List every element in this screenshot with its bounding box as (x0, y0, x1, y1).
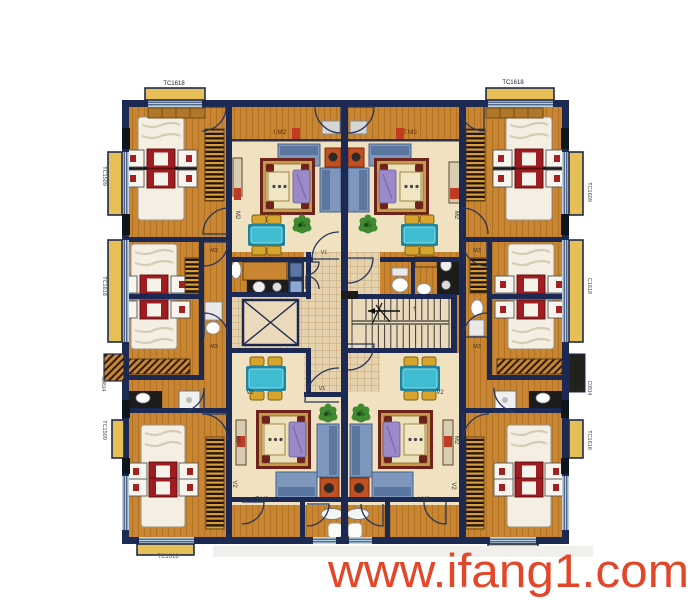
svg-text:www.ifang1.com: www.ifang1.com (327, 544, 689, 597)
svg-text:TC1618: TC1618 (157, 554, 179, 560)
svg-text:C1618: C1618 (586, 278, 592, 294)
svg-text:V2: V2 (450, 482, 456, 490)
svg-text:V1: V1 (319, 386, 326, 392)
svg-text:TC1618: TC1618 (502, 80, 524, 86)
svg-text:M2: M2 (234, 211, 240, 220)
svg-text:TC1509: TC1509 (101, 166, 107, 186)
svg-text:I.M2: I.M2 (274, 129, 287, 136)
svg-text:M2: M2 (453, 436, 459, 445)
svg-text:M3: M3 (210, 248, 218, 254)
svg-text:C0814: C0814 (586, 381, 592, 396)
svg-text:M3: M3 (473, 248, 481, 254)
svg-text:TC1618: TC1618 (101, 276, 107, 296)
svg-text:TC1509: TC1509 (101, 420, 107, 440)
svg-text:TC1609: TC1609 (586, 182, 592, 202)
svg-text:M2: M2 (453, 211, 459, 220)
svg-text:V1: V1 (321, 250, 328, 256)
svg-text:V2: V2 (436, 390, 444, 396)
svg-text:LM3: LM3 (418, 497, 430, 503)
svg-text:M3: M3 (473, 344, 481, 350)
svg-text:TC1618: TC1618 (586, 430, 592, 450)
svg-text:V2: V2 (231, 480, 237, 488)
svg-text:T.M2: T.M2 (403, 129, 417, 136)
svg-text:↑: ↑ (412, 304, 416, 313)
svg-text:M3: M3 (210, 344, 218, 350)
svg-text:TC1618: TC1618 (163, 81, 185, 87)
svg-text:T.M3: T.M3 (255, 497, 269, 503)
svg-text:V2: V2 (246, 390, 254, 396)
svg-text:C0814: C0814 (100, 377, 106, 392)
svg-text:M2: M2 (234, 436, 240, 445)
